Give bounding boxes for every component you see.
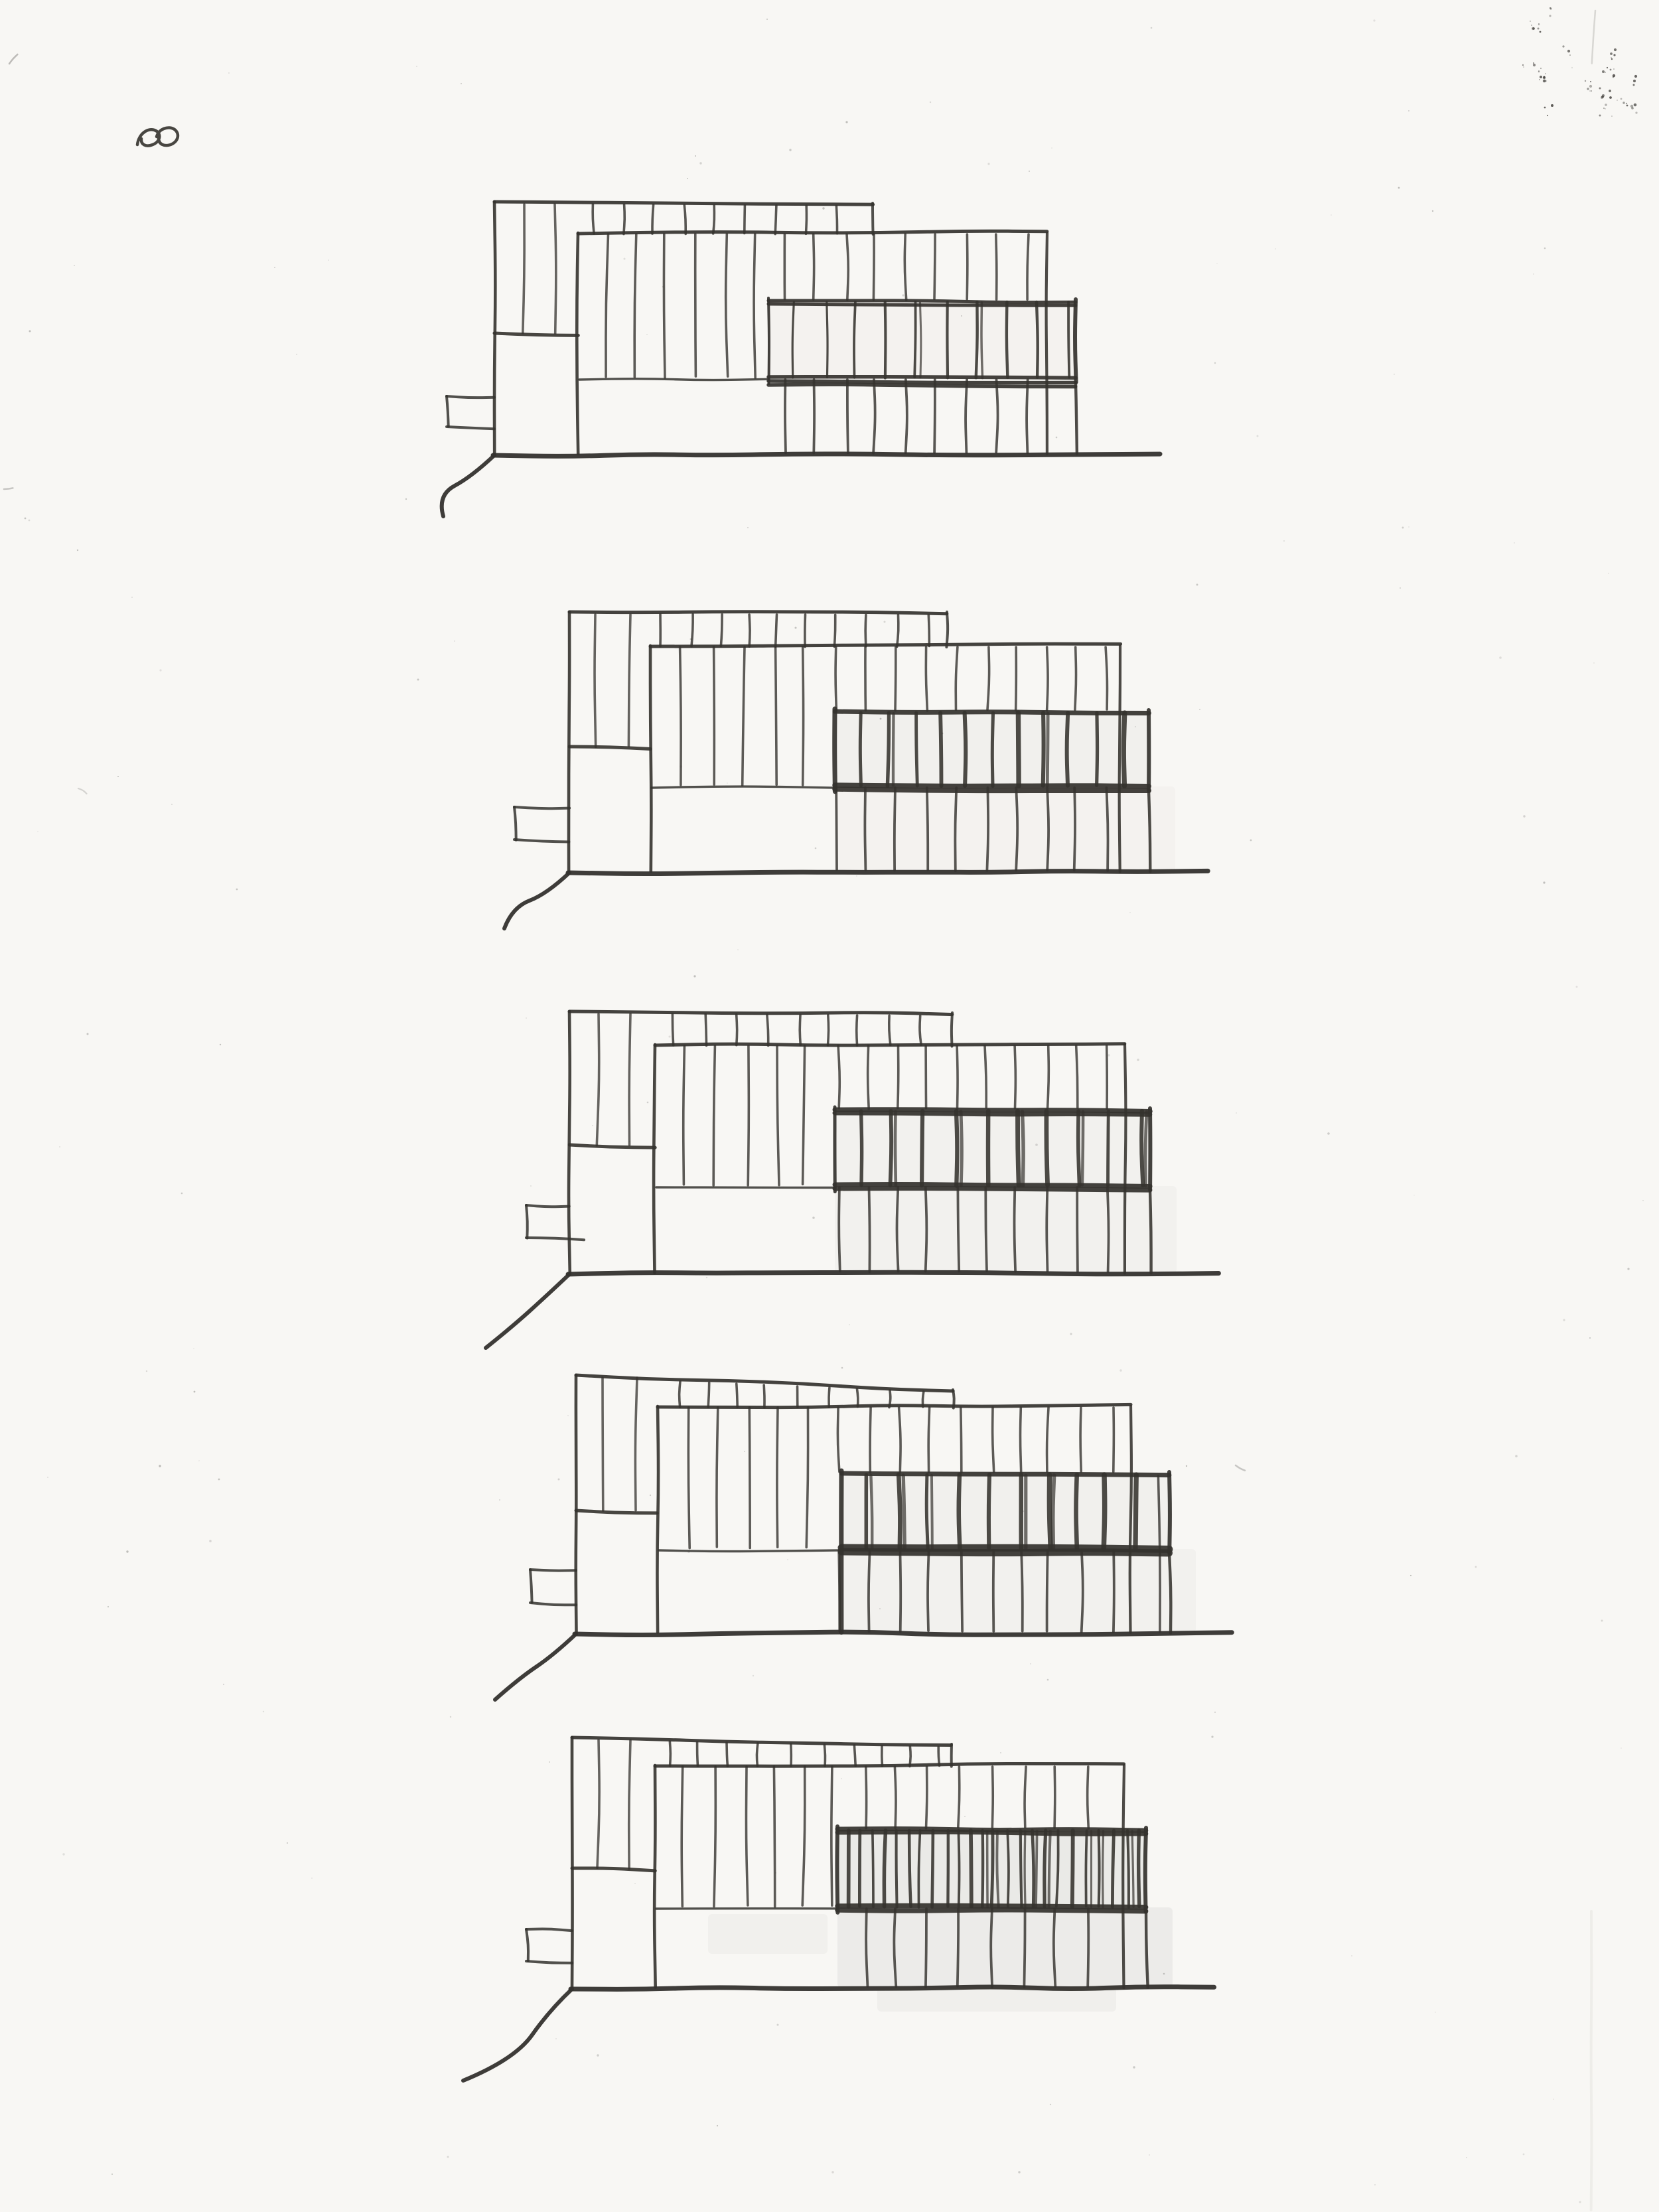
speckle [74, 265, 75, 266]
dust-speck [1633, 84, 1635, 86]
facade-slat [1047, 788, 1048, 870]
side-stub-top [526, 1929, 572, 1931]
facade-slat [745, 206, 745, 234]
window-mullion [827, 302, 828, 378]
facade-slat [839, 1187, 840, 1271]
speckle [787, 1559, 788, 1560]
window-mullion [1145, 1112, 1147, 1186]
window-mullion [991, 1830, 993, 1906]
facade-slat [802, 1767, 805, 1905]
facade-slat [895, 788, 895, 870]
facade-slat [697, 1742, 698, 1765]
facade-slat [926, 647, 927, 711]
back-block-left-edge [569, 1011, 570, 1273]
speckle [1523, 815, 1525, 817]
speckle [777, 2024, 779, 2026]
dust-speck [1531, 25, 1532, 26]
facade-slat [1016, 788, 1017, 870]
speckle [1331, 214, 1331, 215]
facade-slat [961, 1408, 962, 1472]
facade-slat [680, 647, 682, 785]
speckle [25, 518, 27, 520]
facade-slat [713, 205, 715, 234]
speckle [747, 527, 749, 528]
facade-slat [967, 234, 968, 299]
elevation-study-1 [442, 202, 1160, 516]
ground-slope-line [442, 455, 494, 516]
window-mullion [926, 1475, 928, 1548]
facade-slat [684, 205, 685, 234]
window-mullion [932, 1830, 933, 1907]
dust-speck [1603, 108, 1605, 109]
dust-speck [1605, 108, 1605, 109]
facade-slat [1016, 647, 1017, 710]
speckle [650, 1495, 651, 1496]
facade-slat [873, 380, 875, 453]
stray-pencil-mark [1591, 1911, 1592, 2210]
window-band-bottom-rail [835, 1184, 1150, 1186]
speckle [789, 149, 791, 151]
speckle [209, 1540, 212, 1542]
speckle [961, 315, 962, 317]
window-mullion [893, 713, 894, 786]
ground-line [571, 1987, 1214, 1990]
speckle [1543, 881, 1545, 883]
speckle [775, 1872, 776, 1874]
facade-slat [1108, 1187, 1109, 1272]
speckle [634, 1883, 635, 1883]
facade-slat [847, 380, 848, 453]
facade-slat [652, 205, 654, 234]
window-mullion [1104, 1475, 1104, 1548]
speckle [117, 776, 119, 777]
facade-slat [749, 615, 750, 646]
facade-slat [837, 1408, 839, 1472]
facade-slat [721, 615, 722, 646]
front-block-top-edge [655, 1763, 1124, 1766]
ground-line [493, 454, 1160, 456]
speckle [108, 1606, 109, 1607]
elevation-study-4 [495, 1375, 1232, 1700]
facade-slat [814, 234, 814, 299]
back-block-left-edge [494, 202, 495, 454]
speckle [1062, 302, 1062, 303]
facade-slat [746, 1767, 747, 1905]
window-mullion [903, 1475, 904, 1549]
window-mullion [1023, 1112, 1024, 1186]
window-mullion [1018, 713, 1019, 786]
facade-slat [776, 615, 777, 646]
scanned-sketch-page: Five stacked hand-drawn elevation studie… [0, 0, 1659, 2212]
speckle [1398, 187, 1400, 189]
lower-volume-right-edge [1149, 790, 1150, 871]
facade-slat [868, 1046, 869, 1109]
elevation-study-3 [486, 1011, 1218, 1348]
facade-slat [869, 1187, 870, 1272]
window-band-left-edge [835, 709, 835, 792]
speckle [1499, 656, 1502, 659]
stray-pencil-mark [78, 788, 87, 794]
facade-slat [1106, 647, 1107, 709]
facade-slat [814, 380, 814, 453]
lower-volume-right-edge [1150, 1190, 1151, 1273]
speckle [884, 621, 886, 623]
dust-speck [1635, 111, 1637, 113]
facade-slat [727, 1743, 727, 1766]
lower-wall-top-edge [656, 1187, 835, 1188]
window-mullion [1108, 1111, 1109, 1185]
facade-slat [1054, 1767, 1055, 1828]
window-mullion [854, 302, 855, 378]
speckle [567, 1415, 569, 1416]
facade-slat [777, 1408, 778, 1547]
dust-speck [1613, 54, 1615, 56]
speckle [1514, 542, 1515, 544]
facade-slat [1024, 1909, 1025, 1987]
side-stub-bottom [526, 1238, 584, 1240]
entrance-bay-division [572, 1868, 655, 1871]
speckle [1523, 2154, 1525, 2156]
facade-slat [1106, 788, 1108, 871]
speckle [1072, 1843, 1073, 1844]
speckle [328, 259, 329, 261]
facade-slat [955, 788, 956, 871]
window-band-top-rail [768, 301, 1076, 303]
facade-slat [873, 234, 874, 300]
facade-slat [934, 380, 935, 453]
window-mullion [989, 1475, 989, 1548]
back-block-top-edge [494, 202, 873, 204]
speckle [159, 1465, 161, 1467]
facade-slat [737, 1384, 737, 1407]
front-block-top-edge [658, 1404, 1131, 1407]
window-mullion [1021, 1830, 1022, 1907]
speckle [624, 258, 626, 260]
window-band-right-corner [1169, 1472, 1170, 1553]
window-band-top-rail [841, 1473, 1169, 1475]
front-block-left-edge [650, 646, 651, 871]
dust-speck [1545, 73, 1546, 74]
dust-speck [1547, 115, 1548, 116]
ground-slope-line [495, 1634, 576, 1700]
window-mullion [992, 713, 993, 786]
window-mullion [1018, 1111, 1019, 1185]
speckle [131, 597, 133, 598]
facade-slat [992, 1767, 993, 1828]
speckle [856, 875, 857, 876]
speckle [1051, 147, 1052, 148]
dust-speck [1633, 80, 1636, 82]
speckle [687, 178, 688, 179]
window-mullion [1135, 1475, 1136, 1548]
speckle [831, 2171, 833, 2173]
speckle [795, 627, 797, 629]
window-mullion [1036, 1831, 1037, 1907]
speckle [526, 1017, 527, 1019]
facade-slat [991, 1909, 992, 1987]
speckle [766, 19, 768, 20]
facade-slat [767, 1015, 768, 1045]
speckle [1400, 587, 1401, 589]
dust-speck [1585, 80, 1586, 82]
back-block-right-edge [952, 1013, 952, 1047]
window-mullion [861, 1111, 862, 1185]
facade-slat [695, 234, 696, 376]
dust-speck [1611, 115, 1613, 117]
dust-speck [1626, 105, 1628, 107]
side-stub-top [530, 1570, 576, 1571]
speckle [62, 1853, 64, 1855]
facade-slat [957, 1046, 958, 1109]
window-mullion [947, 302, 948, 378]
speckle [1257, 435, 1259, 437]
facade-slat [688, 1408, 689, 1548]
lower-wall-top-edge [652, 786, 834, 788]
ground-line [568, 871, 1208, 873]
speckle [669, 1036, 671, 1038]
speckle [942, 733, 944, 735]
speckle [693, 975, 695, 977]
facade-slat [713, 1046, 715, 1185]
speckle [1466, 2157, 1467, 2158]
dust-speck [1538, 70, 1540, 72]
speckle [737, 949, 738, 950]
speckle [59, 1146, 60, 1147]
facade-slat [1047, 647, 1048, 710]
speckle [1589, 1337, 1591, 1339]
speckle [1135, 726, 1136, 727]
speckle [405, 498, 407, 500]
window-mullion [932, 1475, 932, 1548]
speckle [690, 638, 692, 640]
speckle [880, 718, 882, 720]
side-stub-top [447, 396, 494, 398]
facade-slat [593, 204, 594, 234]
speckle [812, 1217, 814, 1218]
dust-speck [1634, 75, 1637, 78]
side-stub-top [526, 1205, 569, 1207]
dust-speck [1605, 72, 1605, 72]
back-block-left-edge [572, 1737, 573, 1987]
speckle [1544, 248, 1546, 250]
window-mullion [1139, 1830, 1139, 1907]
side-stub-bottom [447, 427, 494, 429]
speckle [1576, 986, 1578, 988]
speckle [1435, 2012, 1435, 2012]
back-block-top-edge [572, 1737, 951, 1745]
ground-line [568, 1272, 1218, 1274]
facade-slat [680, 1382, 680, 1408]
speckle [597, 2054, 599, 2056]
window-mullion [918, 1830, 920, 1907]
speckle [223, 1684, 224, 1685]
window-mullion [909, 1830, 910, 1907]
facade-slat [906, 380, 907, 453]
dust-speck [1621, 98, 1623, 100]
speckle [417, 679, 419, 681]
side-stub-bottom [526, 1961, 573, 1963]
speckle [1413, 1195, 1414, 1195]
dust-speck [1540, 76, 1542, 78]
facade-slat [854, 1745, 855, 1766]
facade-slat [684, 1046, 685, 1185]
facade-slat [705, 1014, 706, 1045]
window-band-top-rail [835, 1113, 1150, 1114]
facade-slat [606, 234, 609, 377]
facade-slat [865, 647, 866, 710]
facade-slat [836, 206, 837, 234]
window-band-bottom-rail [837, 1910, 1146, 1911]
speckle [1000, 1752, 1001, 1753]
speckle [37, 831, 38, 832]
window-mullion [1072, 1830, 1073, 1907]
window-mullion [884, 1830, 885, 1907]
front-block-right-edge [1130, 1406, 1131, 1633]
speckle [1351, 1955, 1352, 1956]
ground-slope-line [463, 1989, 572, 2081]
side-stub-left [514, 807, 516, 840]
entrance-bay-division [494, 333, 578, 335]
facade-slat [1015, 1046, 1015, 1108]
back-block-left-edge [576, 1375, 577, 1633]
facade-slat [928, 1408, 929, 1472]
window-mullion [1007, 302, 1008, 378]
dust-speck [1543, 80, 1546, 82]
window-mullion [1078, 1111, 1080, 1186]
speckle [695, 155, 696, 157]
speckle [1018, 2171, 1020, 2173]
facade-slat [803, 1046, 805, 1184]
window-mullion [1049, 1475, 1050, 1548]
facade-slat [996, 380, 997, 452]
window-band-left-edge [837, 1826, 837, 1913]
speckle [1050, 2104, 1051, 2105]
speckle [218, 1479, 220, 1481]
dust-speck [1590, 81, 1591, 82]
speckle [1133, 2066, 1135, 2068]
facade-slat [870, 1408, 871, 1473]
speckle [159, 669, 161, 671]
dust-speck [1601, 96, 1603, 99]
facade-slat [726, 234, 728, 376]
facade-slat [1027, 380, 1028, 453]
speckle [1553, 2099, 1554, 2100]
facade-slat [865, 615, 866, 646]
window-mullion [958, 1830, 959, 1907]
speckle [1432, 210, 1433, 212]
speckle [181, 1193, 183, 1195]
window-mullion [1123, 713, 1124, 786]
elevation-sketches-svg [0, 0, 1659, 2212]
speckle [930, 102, 931, 103]
back-block-top-edge [569, 1011, 952, 1015]
facade-slat [714, 647, 715, 784]
facade-slat [1027, 234, 1029, 299]
speckle [662, 286, 664, 288]
facade-slat [595, 615, 596, 747]
window-band-bottom-rail [768, 381, 1076, 383]
speckle [1327, 1132, 1330, 1135]
speckle [629, 1141, 630, 1142]
facade-slat [774, 1767, 774, 1907]
facade-slat [996, 234, 997, 299]
speckle [647, 1102, 649, 1104]
facade-slat [847, 234, 848, 300]
window-mullion [1067, 713, 1068, 786]
facade-slat [555, 204, 556, 333]
dust-speck [1609, 90, 1611, 92]
facade-slat [910, 1747, 910, 1767]
speckle [1119, 1369, 1121, 1371]
facade-slat [1075, 647, 1076, 710]
facade-slat [829, 1388, 829, 1407]
speckle [845, 121, 847, 123]
facade-slat [1015, 1187, 1016, 1272]
speckle [499, 1499, 500, 1501]
speckle [1211, 1735, 1213, 1737]
dust-speck [1591, 90, 1592, 92]
dust-speck [1610, 69, 1612, 71]
window-mullion [916, 713, 918, 786]
facade-slat [835, 647, 836, 711]
dust-speck [1611, 58, 1613, 60]
speckle [680, 765, 682, 768]
window-mullion [871, 1475, 872, 1548]
dust-speck [1532, 27, 1535, 30]
speckle [1283, 540, 1285, 542]
back-block-left-edge [569, 612, 569, 871]
window-mullion [956, 1111, 957, 1186]
facade-slat [805, 615, 806, 646]
window-band-right-corner [1145, 1828, 1146, 1911]
entrance-bay-division [569, 747, 650, 749]
dust-speck [1611, 57, 1611, 58]
stray-pencil-mark [1236, 1465, 1245, 1471]
speckle [263, 1711, 264, 1712]
speckle [1275, 248, 1275, 249]
speckle [1199, 709, 1200, 710]
speckle [311, 1878, 312, 1878]
dust-speck [1523, 66, 1524, 67]
window-mullion [1037, 302, 1038, 378]
speckle [1030, 1663, 1031, 1664]
facade-slat [1021, 1408, 1021, 1472]
front-block-left-edge [654, 1765, 656, 1987]
speckle [706, 1277, 707, 1278]
facade-slat [603, 1378, 603, 1511]
speckle [841, 1778, 842, 1779]
dust-speck [1549, 15, 1551, 17]
window-band-top-rail [768, 304, 1076, 305]
speckle [1056, 437, 1058, 439]
window-mullion [1068, 302, 1069, 377]
facade-slat [1077, 1187, 1078, 1272]
side-stub-top [514, 807, 569, 808]
dust-speck [1539, 79, 1540, 80]
window-band-wash [835, 1110, 1150, 1186]
facade-slat [1021, 1550, 1023, 1631]
facade-slat [708, 1383, 709, 1407]
front-block-left-edge [577, 233, 578, 454]
window-band-left-edge [768, 298, 769, 384]
speckle [146, 1370, 147, 1372]
lower-volume-right-edge [1169, 1553, 1171, 1633]
facade-slat [958, 1909, 958, 1986]
window-mullion [1097, 713, 1098, 785]
facade-slat [926, 1767, 927, 1828]
facade-slat [824, 1745, 825, 1766]
facade-slat [664, 234, 665, 378]
